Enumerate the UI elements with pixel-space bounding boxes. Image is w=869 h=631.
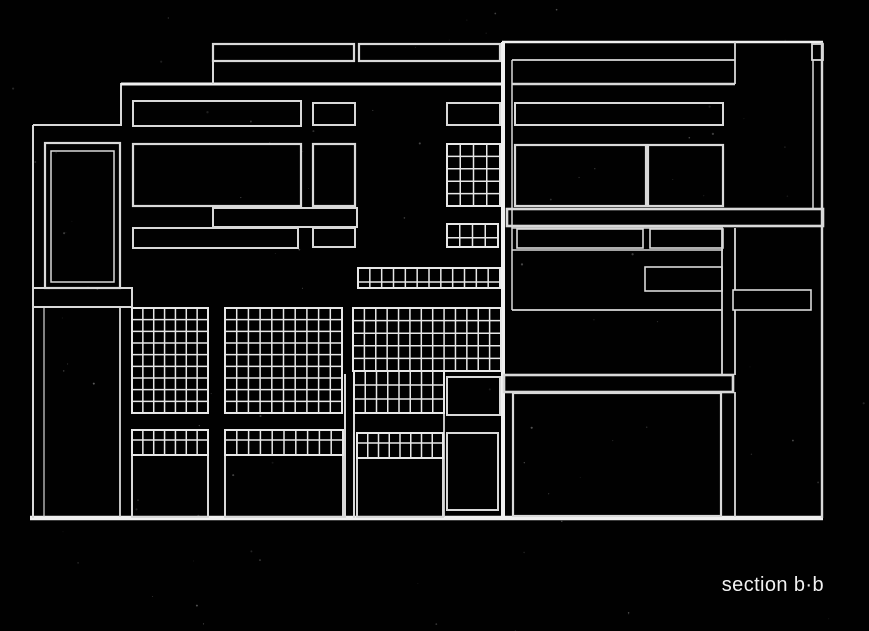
film-grain-dot [250,121,252,123]
film-grain-dot [415,47,416,48]
film-grain-dot [240,197,241,198]
film-grain-dot [787,195,789,197]
film-grain-dot [232,474,234,476]
film-grain-dot [211,393,212,394]
film-grain-dot [703,195,704,196]
film-grain-dot [67,363,68,364]
film-grain-dot [160,61,162,63]
film-grain-dot [419,142,421,144]
film-grain-dot [77,562,79,564]
film-grain-dot [548,493,549,494]
film-grain-dot [524,462,525,463]
film-grain-dot [594,168,595,169]
film-grain-dot [863,402,865,404]
film-grain-dot [489,388,491,390]
drawing-background [0,0,869,631]
film-grain-dot [612,440,613,441]
film-grain-dot [485,32,486,33]
film-grain-dot [168,17,169,18]
film-grain-dot [250,550,252,552]
film-grain-dot [34,161,36,163]
film-grain-dot [135,508,137,510]
film-grain-dot [828,618,829,619]
film-grain-dot [657,321,658,322]
film-grain-dot [62,318,63,319]
film-grain-dot [449,40,450,41]
film-grain-dot [63,232,65,234]
film-grain-dot [65,232,66,233]
film-grain-dot [523,552,524,553]
film-grain-dot [593,319,594,320]
film-grain-dot [193,560,194,561]
section-drawing-svg [0,0,869,631]
film-grain-dot [206,111,208,113]
film-grain-dot [561,521,562,522]
film-grain-dot [137,499,139,501]
film-grain-dot [578,177,579,178]
film-grain-dot [302,288,303,289]
film-grain-dot [550,199,552,201]
film-grain-dot [743,118,744,119]
film-grain-dot [404,217,406,219]
film-grain-dot [792,440,794,442]
film-grain-dot [372,110,373,111]
film-grain-dot [63,531,64,532]
film-grain-dot [646,426,647,427]
film-grain-dot [785,40,786,41]
film-grain-dot [631,253,633,255]
film-grain-dot [672,179,673,180]
film-grain-dot [312,130,314,132]
film-grain-dot [55,152,56,153]
film-grain-dot [12,88,14,90]
film-grain-dot [712,133,714,135]
film-grain-dot [259,415,261,417]
film-grain-dot [196,605,198,607]
film-grain-dot [302,151,303,152]
film-grain-dot [93,383,95,385]
film-grain-dot [531,427,533,429]
film-grain-dot [494,13,496,15]
film-grain-dot [275,253,276,254]
film-grain-dot [63,370,64,372]
film-grain-dot [308,188,309,189]
film-grain-dot [689,137,691,139]
film-grain-dot [751,454,752,455]
film-grain-dot [580,477,581,478]
architectural-section-drawing: section b·b [0,0,869,631]
film-grain-dot [784,146,786,148]
film-grain-dot [466,20,467,21]
film-grain-dot [272,462,274,464]
film-grain-dot [199,425,200,426]
film-grain-dot [521,263,523,265]
film-grain-dot [817,481,819,483]
film-grain-dot [556,9,558,11]
drawing-caption: section b·b [0,574,824,597]
film-grain-dot [750,366,751,367]
film-grain-dot [203,623,204,624]
film-grain-dot [628,612,630,614]
film-grain-dot [259,559,261,561]
film-grain-dot [71,221,72,222]
film-grain-dot [628,613,629,614]
film-grain-dot [435,623,437,625]
film-grain-dot [709,105,711,107]
